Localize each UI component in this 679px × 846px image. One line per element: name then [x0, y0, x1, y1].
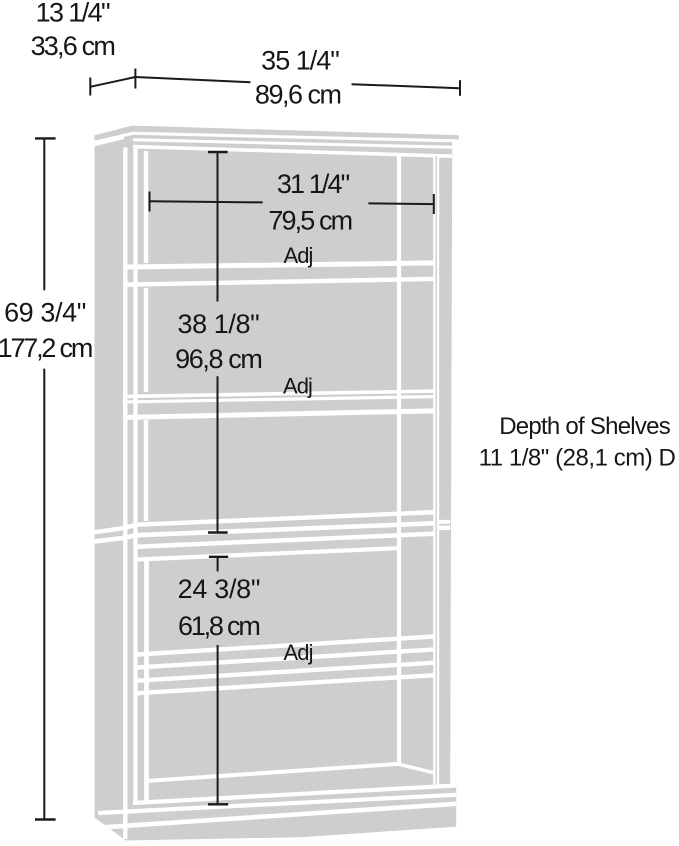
svg-text:69 3/4": 69 3/4"	[4, 298, 86, 328]
svg-text:38 1/8": 38 1/8"	[177, 309, 259, 339]
svg-text:96,8 cm: 96,8 cm	[175, 344, 261, 374]
svg-text:Adj: Adj	[283, 243, 312, 268]
svg-text:79,5 cm: 79,5 cm	[268, 206, 351, 236]
svg-text:89,6 cm: 89,6 cm	[255, 80, 341, 110]
svg-text:177,2 cm: 177,2 cm	[0, 333, 92, 363]
svg-text:11 1/8" (28,1 cm) D: 11 1/8" (28,1 cm) D	[479, 445, 676, 472]
svg-text:31 1/4": 31 1/4"	[277, 169, 350, 199]
svg-text:35 1/4": 35 1/4"	[261, 46, 339, 76]
svg-text:13 1/4": 13 1/4"	[36, 0, 110, 28]
svg-text:33,6 cm: 33,6 cm	[31, 31, 115, 61]
svg-text:Depth of Shelves: Depth of Shelves	[499, 413, 671, 440]
svg-text:Adj: Adj	[283, 373, 312, 398]
svg-text:24 3/8": 24 3/8"	[178, 574, 261, 604]
svg-text:61,8 cm: 61,8 cm	[178, 611, 259, 641]
svg-text:Adj: Adj	[284, 640, 313, 665]
